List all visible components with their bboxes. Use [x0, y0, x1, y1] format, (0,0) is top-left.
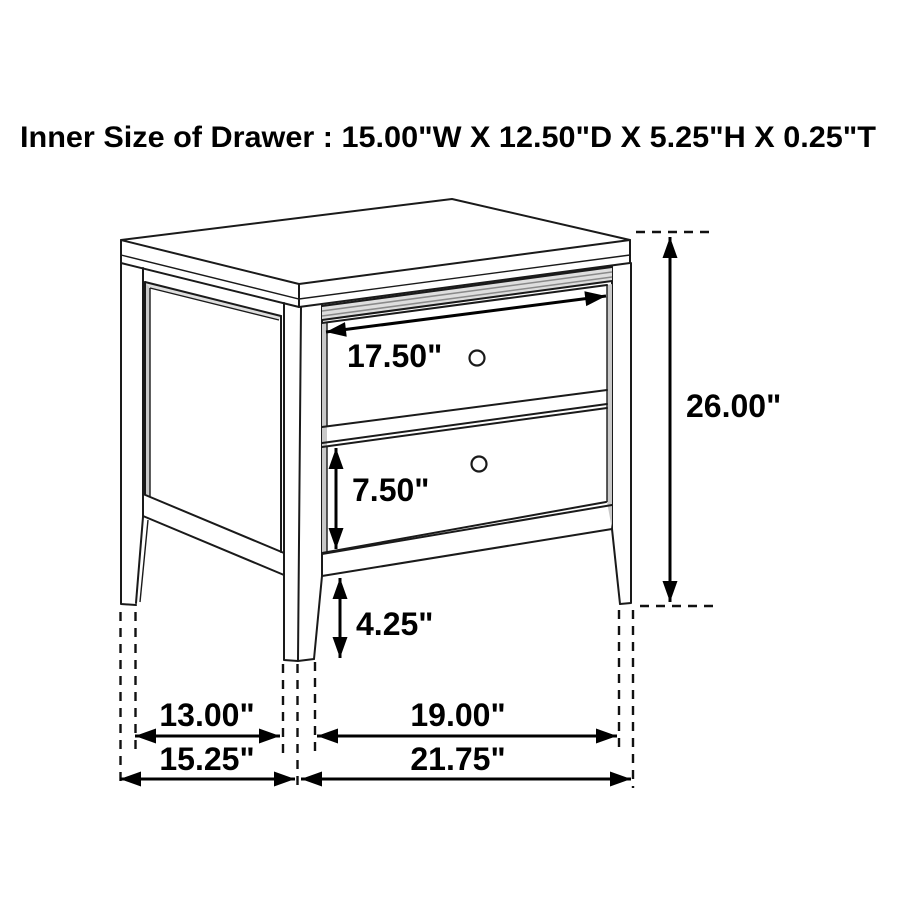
arrowhead-right	[610, 772, 631, 787]
dim-label-drawer-height: 7.50"	[352, 472, 429, 508]
back-left-leg	[121, 263, 148, 605]
front-right-leg-outer-edge	[620, 263, 631, 604]
dimension-leg-height: 4.25"	[333, 578, 434, 658]
drawer-right-gap-shadow	[607, 284, 612, 529]
top-panel	[121, 199, 630, 307]
product-dimension-diagram: Inner Size of Drawer : 15.00"W X 12.50"D…	[0, 0, 900, 900]
top-drawer-knob	[470, 351, 485, 366]
front-left-leg	[284, 303, 322, 661]
dimension-side-overall: 15.25"	[120, 741, 295, 787]
arrowhead-up	[333, 578, 348, 599]
front-right-leg	[612, 263, 631, 604]
dimension-front-overall: 21.75"	[301, 741, 631, 787]
arrowhead-left	[301, 772, 322, 787]
top-drawer-bottom-edge	[322, 390, 607, 427]
top-panel-surface	[121, 199, 630, 284]
back-left-leg-taper	[136, 517, 143, 603]
bottom-drawer-knob	[472, 457, 487, 472]
drawer-divider-rail	[322, 404, 607, 443]
arrowhead-down	[663, 581, 678, 602]
dimension-overall-height: 26.00"	[663, 237, 782, 602]
dimension-diagram-canvas: Inner Size of Drawer : 15.00"W X 12.50"D…	[0, 0, 900, 900]
dim-label-side-inner: 13.00"	[159, 697, 254, 733]
dim-label-drawer-width: 17.50"	[347, 338, 442, 374]
bottom-drawer-top-edge	[322, 408, 607, 447]
side-bottom-rail-bottom	[143, 516, 284, 575]
front-bottom-rail-bottom	[322, 529, 612, 576]
front-left-leg-taper	[314, 576, 322, 659]
arrowhead-left	[326, 322, 347, 337]
dimension-front-inner: 19.00"	[317, 697, 617, 744]
arrowhead-right	[274, 772, 295, 787]
drawer-left-gap-shadow	[322, 322, 327, 553]
arrowhead-down	[333, 637, 348, 658]
front-right-leg-taper	[612, 529, 620, 604]
arrowhead-down	[329, 528, 344, 549]
top-molding-line-3	[322, 277, 612, 316]
arrowhead-up	[663, 237, 678, 258]
dim-label-overall-height: 26.00"	[686, 388, 781, 424]
nightstand-drawing	[121, 199, 631, 661]
arrowhead-left	[135, 729, 156, 744]
arrowhead-right	[596, 729, 617, 744]
front-bottom-rail-top	[322, 505, 612, 554]
page-title: Inner Size of Drawer : 15.00"W X 12.50"D…	[20, 121, 876, 154]
arrowhead-right	[259, 729, 280, 744]
arrowhead-left	[120, 772, 141, 787]
dim-label-side-overall: 15.25"	[159, 741, 254, 777]
bottom-drawer-bottom-edge	[322, 502, 606, 553]
side-panel-bevel-top	[145, 282, 281, 316]
dim-label-front-overall: 21.75"	[410, 741, 505, 777]
side-panel-bevel-top-inner	[150, 288, 279, 320]
dimension-bottom-drawer-height: 7.50"	[329, 448, 430, 549]
front-left-leg-corner-edge	[298, 307, 301, 660]
arrowhead-up	[329, 448, 344, 469]
side-bottom-rail-top	[143, 494, 284, 553]
arrowhead-right	[584, 291, 606, 306]
dim-label-leg-height: 4.25"	[356, 606, 433, 642]
dim-label-front-inner: 19.00"	[410, 697, 505, 733]
back-left-leg-outer-edge	[121, 263, 136, 605]
dimension-side-inner: 13.00"	[135, 697, 280, 744]
top-molding-line-2	[322, 272, 612, 311]
side-panel	[143, 282, 284, 575]
arrowhead-left	[317, 729, 338, 744]
